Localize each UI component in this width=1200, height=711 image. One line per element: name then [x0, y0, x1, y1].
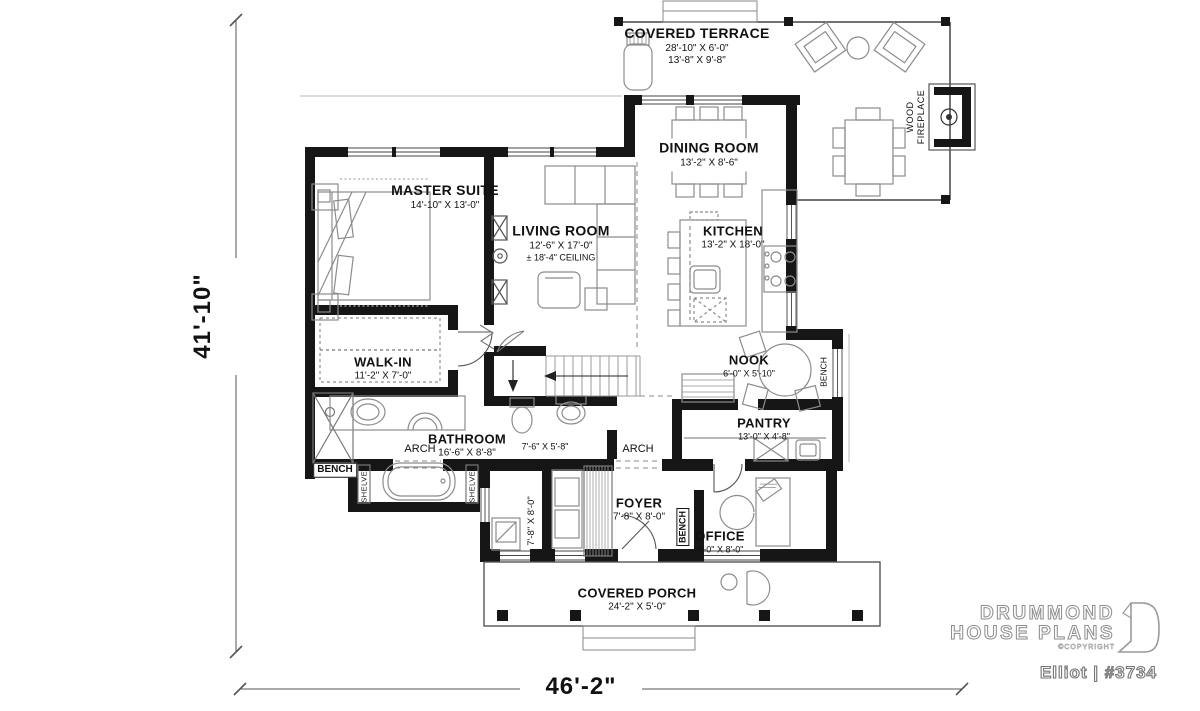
- wood-fireplace: [929, 84, 975, 150]
- room-label-pantry: PANTRY 13'-0" X 4'-8": [737, 415, 791, 443]
- room-label-master-suite: MASTER SUITE 14'-10" X 13'-0": [391, 182, 499, 212]
- overall-width-dimension: 46'-2": [545, 672, 616, 702]
- room-label-bathroom: BATHROOM 16'-6" X 8'-8": [428, 432, 506, 461]
- overall-depth-dimension: 41'-10": [188, 273, 218, 358]
- room-label-kitchen: KITCHEN 13'-2" X 18'-0": [701, 224, 764, 253]
- shelves-label-right: SHELVES: [467, 465, 476, 503]
- porch-furniture: [721, 571, 770, 605]
- wood-fireplace-label: WOOD FIREPLACE: [905, 90, 928, 145]
- windows: [348, 95, 843, 562]
- plan-name-number: Elliot | #3734: [1040, 663, 1157, 683]
- room-label-foyer: FOYER 7'-8" X 8'-0": [613, 496, 665, 525]
- shelves-label-left: SHELVES: [359, 465, 368, 503]
- drummond-house-plans-logo: DRUMMOND HOUSE PLANS ©COPYRIGHT: [950, 604, 1115, 651]
- floor-plan-page: COVERED TERRACE 28'-10" X 6'-0" 13'-8" X…: [0, 0, 1200, 711]
- arch-label-bathroom: ARCH: [404, 443, 435, 457]
- room-label-office: OFFICE 8'-0" X 8'-0": [695, 528, 744, 556]
- room-label-covered-porch: COVERED PORCH 24'-2" X 5'-0": [578, 586, 697, 615]
- bench-label-shower: BENCH: [313, 463, 357, 478]
- bench-label-nook: BENCH: [819, 357, 830, 387]
- foyer-closet: [552, 466, 612, 556]
- room-label-living-room: LIVING ROOM 12'-6" X 17'-0" ± 18'-4" CEI…: [512, 222, 609, 263]
- room-label-dining-room: DINING ROOM 13'-2" X 8'-6": [651, 139, 767, 172]
- bench-label-foyer: BENCH: [676, 508, 689, 546]
- drummond-logo-mark: [1119, 603, 1159, 652]
- room-label-walk-in: WALK-IN 11'-2" X 7'-0": [354, 355, 412, 384]
- arch-label-foyer: ARCH: [622, 443, 653, 457]
- wc-dimensions: 7'-6" X 5'-8": [522, 441, 569, 452]
- mudroom-dimensions: 7'-8" X 8'-0": [526, 496, 538, 545]
- tv-unit: [492, 216, 507, 304]
- room-label-covered-terrace: COVERED TERRACE 28'-10" X 6'-0" 13'-8" X…: [624, 25, 769, 68]
- room-label-nook: NOOK 6'-0" X 5'-10": [723, 352, 775, 380]
- mudroom-fixture: [492, 518, 520, 550]
